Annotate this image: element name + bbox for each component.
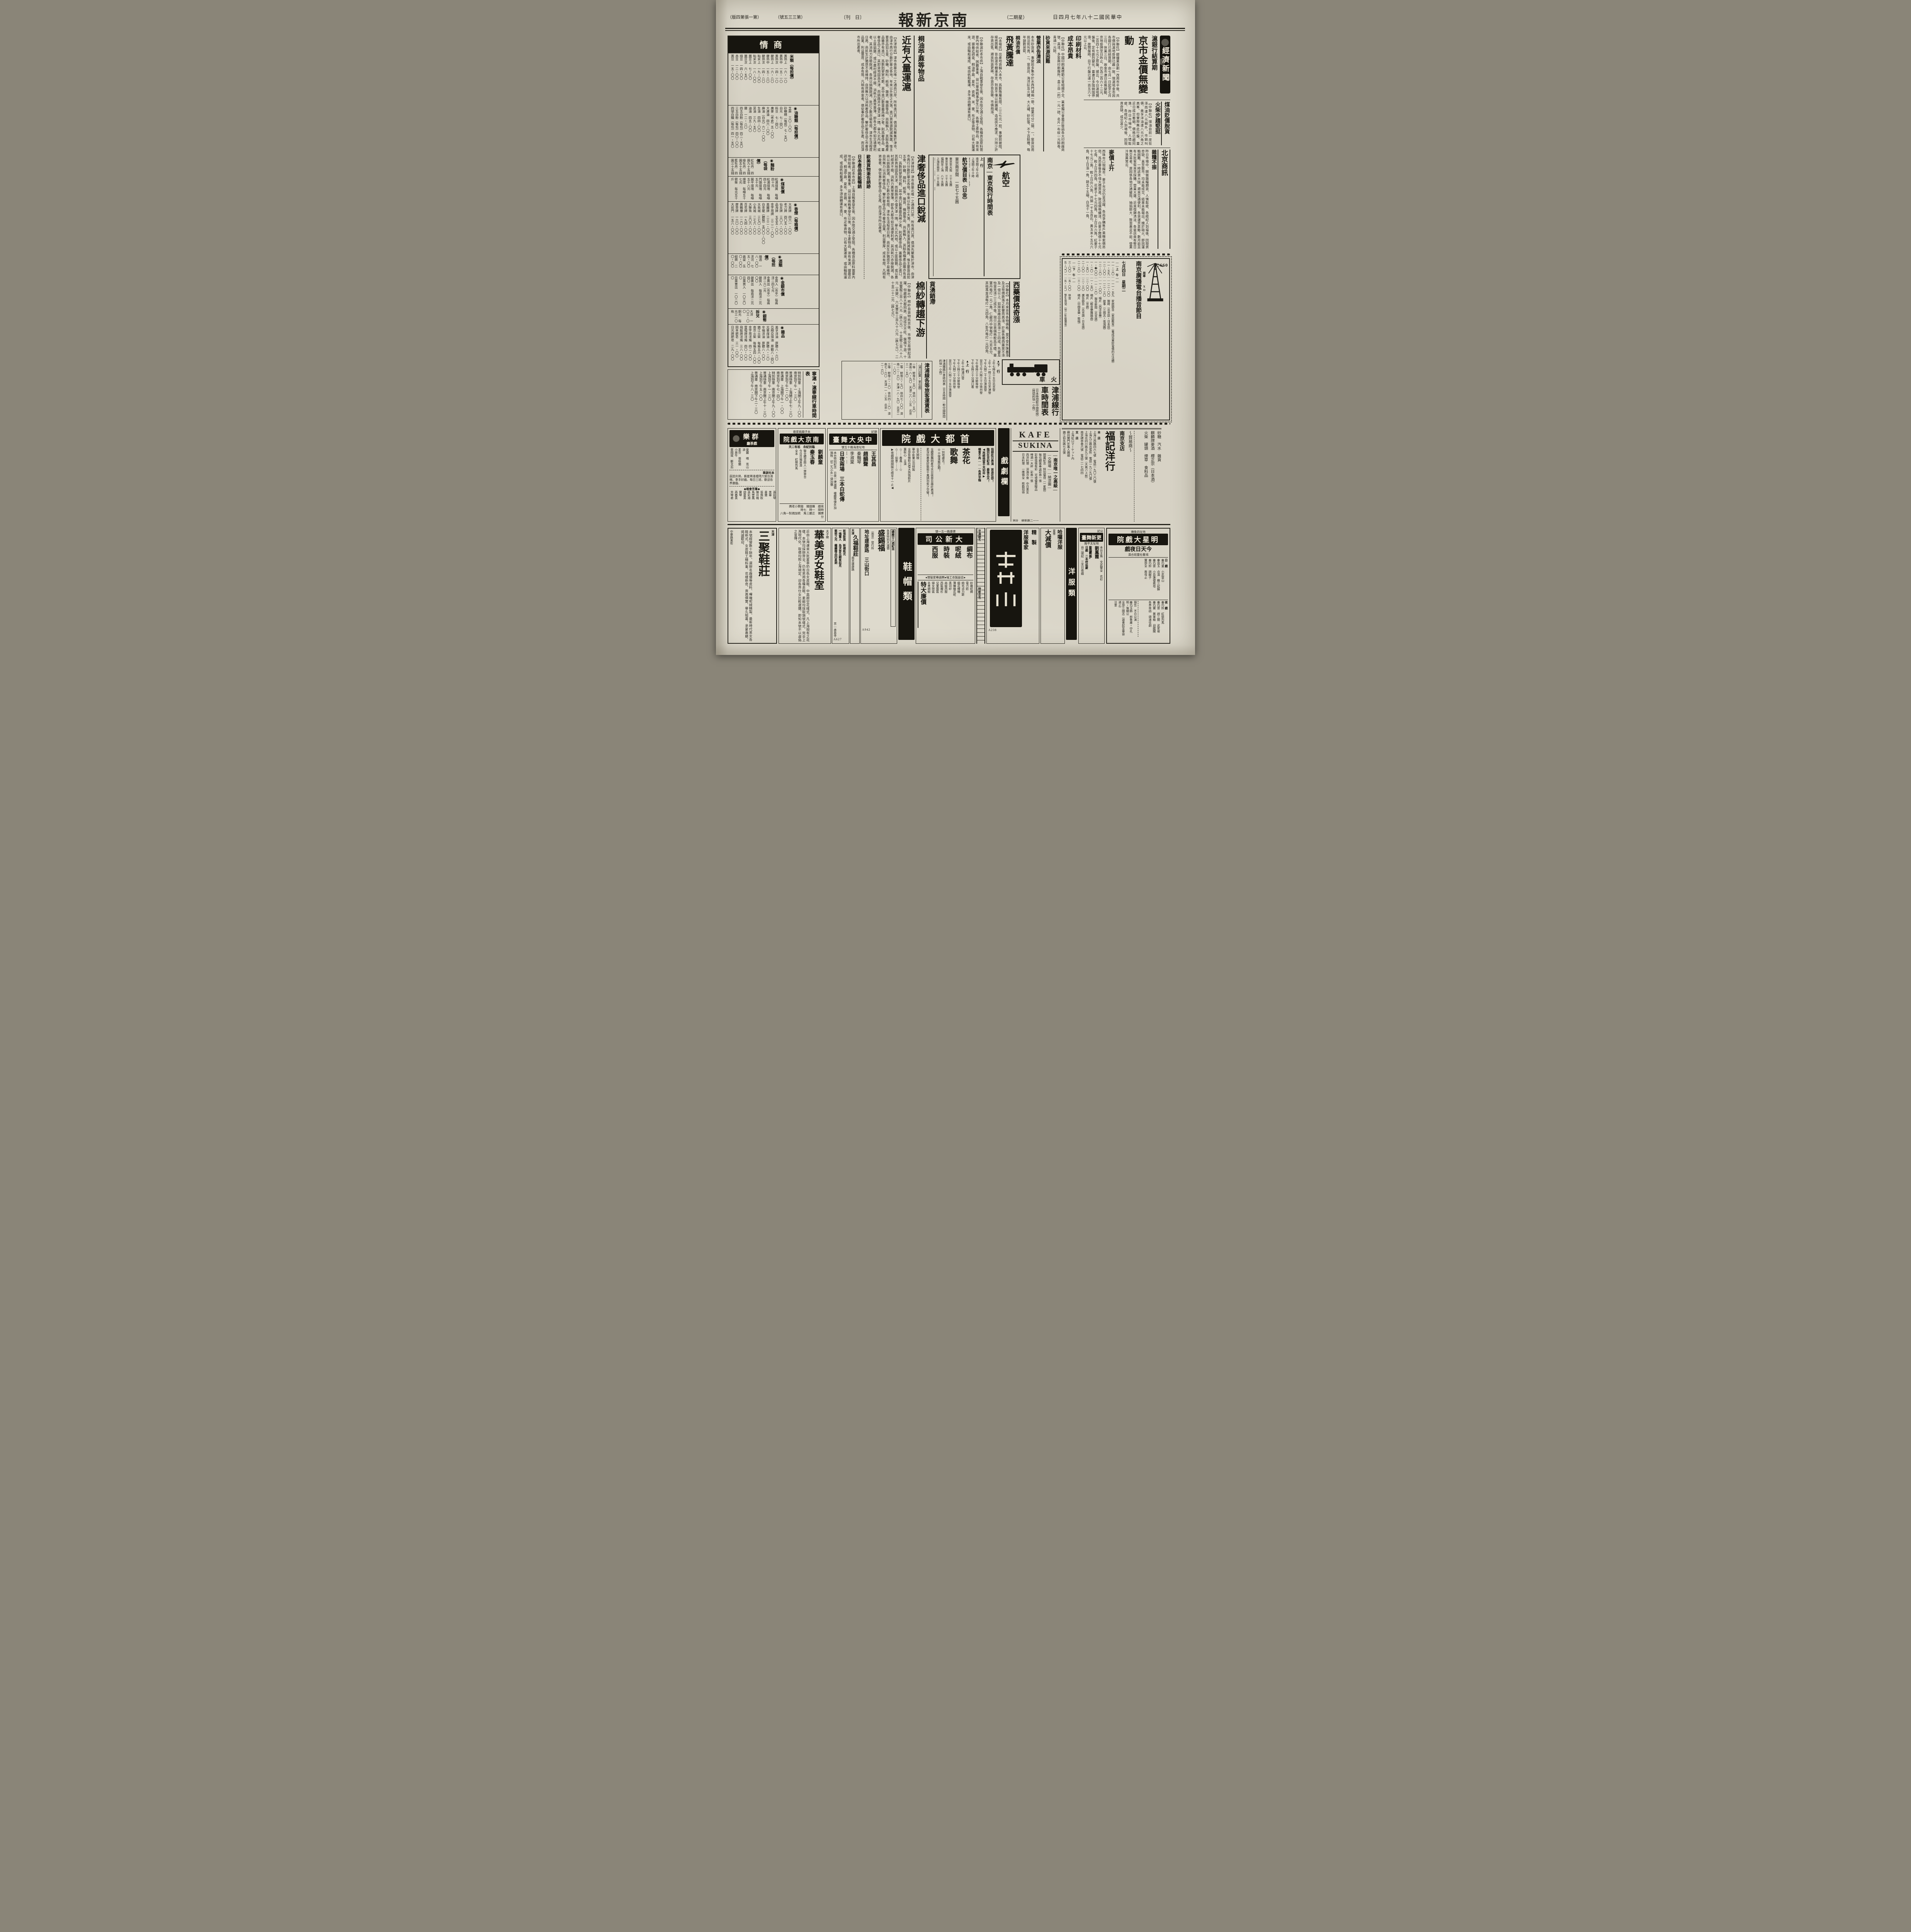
performance-line: 曼麗 唱 荒山淚 — [742, 448, 749, 470]
lead-kicker: 滬銀行結算期 — [1150, 36, 1158, 97]
divider-band-d — [728, 524, 1170, 525]
program-line: 寶部全 救母止 — [1144, 559, 1148, 600]
jinpu-time: 下午九時二十分徐州發 — [953, 359, 956, 420]
market-row: 銀賣出 每兩洋二元四〇 — [747, 276, 754, 307]
kafe-line: 開幕紀念 特別優待（一星期） — [1043, 453, 1046, 518]
singer-name: 美華 — [768, 491, 772, 522]
market-row: 粳熟中 一五・八〇 — [766, 54, 770, 104]
market-row: 白元 七・四〇 — [779, 107, 783, 156]
market-row: 仙女牌 三〇八・〇〇 — [779, 203, 783, 252]
store-address: 上海九江路出張所 電話一九二九〇號 — [1089, 431, 1092, 522]
market-row: 辛福洋油 原聽八・〇〇 — [762, 326, 765, 364]
program-line: 曁全體百餘人一齊登台 — [803, 449, 807, 503]
fuji-branch: 南京支店 — [1118, 431, 1126, 522]
aviation-box: 航空 南京—東京飛行時間表 上 行 南京開上午七時上海開上午十時東京到下午五時十… — [928, 155, 1020, 279]
daxin-address: 建康路一五一號 — [918, 530, 973, 533]
performance-line: 素芬 張桂蘭 小放牛 — [734, 448, 741, 470]
stylized-brand-logo — [990, 530, 1022, 627]
sand-subhead-1: 砂貨來源困難 — [1043, 36, 1051, 151]
tung-oil-article: 桐油市價 飛黃騰達 【本報訊】出產地貨輛入本市、爲數殊屬有限、二三七元一担、事變… — [986, 36, 1021, 151]
nanjing-theater-title: 南京大戲院 — [780, 434, 824, 444]
issue-number: （第三三五號） — [775, 14, 805, 20]
troupe-name-part: 茶花 — [960, 448, 972, 520]
daxin-banner: 特大廉價 — [918, 582, 927, 628]
branch-address: 上海虹口マーケット內 — [1071, 431, 1075, 522]
market-row: 料豆 七・四〇 — [775, 107, 778, 156]
jiufu-city: 天津 — [851, 529, 855, 535]
section-title: ◉雜品 — [780, 326, 784, 338]
market-row: 雷帽牌洋燭 四〇・〇〇 — [744, 326, 747, 364]
market-row: 鹽 一二・八〇 — [744, 107, 747, 156]
performer-name: 秦豔琴 — [856, 451, 862, 509]
up-label: ▲上 行 — [966, 359, 969, 420]
huamei-body: 近由上海運來大批夏季奶白色女皮鞋、中高跟空花樣式、凡上海現有之花樣、本號均採辦齊… — [782, 530, 810, 642]
market-row: 光華煤油 原聽八・二〇 — [766, 326, 770, 364]
radio-program-module: JC660 周率 XO 南京廣播電台播音節目 七月四日 星期二 ——上 午—— … — [1062, 258, 1170, 420]
kafe-address: 地址 維新路二一一 — [1013, 519, 1039, 522]
performer-name: 秦玉春 — [808, 449, 816, 503]
kafe-subline: —交際場——納涼園— — [1047, 453, 1052, 518]
daxin-item: 純毛派力斯 — [961, 582, 965, 628]
kafe-line: 每位顧客奉送彩券一張 — [1039, 453, 1042, 518]
market-row: 綠豆 一四・〇〇 — [740, 54, 743, 104]
singer-name: 燕春英 — [734, 491, 738, 522]
lead-body: 【中聯社】銀樓業自劃一改用市平後、共市價與滬地掛牌已趨一致、現滬地金市因各銀行已… — [1084, 36, 1120, 97]
ad-plate-code: A942 — [862, 628, 896, 631]
up-label: 上 行 — [980, 157, 984, 276]
flight-time: 上海開上午十時 — [971, 157, 975, 276]
kafe-line: 日本料理 一應俱全 慇勤招待 — [1022, 453, 1025, 518]
weekday-label: （星期二） — [1004, 14, 1027, 20]
jinpu-title: 津浦線行車時間表 — [1039, 386, 1060, 419]
sanju-city: 天津 — [771, 530, 775, 641]
market-row: 金買入（市平）每兩洋二四七元 — [771, 276, 778, 307]
flight-time: 東京到下午五時十五分 — [969, 157, 970, 276]
singer-name: 曼雅 — [764, 491, 768, 522]
timetable-row: 特別快車 南京開上午九・〇〇 上海到下午一・三〇 — [768, 371, 775, 418]
timetable-row: 普通快車 南京開上午十・三〇 上海到下午五・〇〇 — [759, 371, 767, 418]
market-row: 麻油（白元）六二・〇〇 — [762, 107, 765, 156]
promo-line: 一別他處去！ — [942, 448, 945, 520]
singer-name: 孫彩湘 — [747, 491, 751, 522]
daxin-item: 婦女時裝 — [932, 582, 935, 628]
jiufu-address: 南京建康路 — [851, 556, 855, 571]
market-row: 飛艇牌洋燭 三八・〇〇 — [740, 326, 743, 364]
market-row: 大洋 一〇三・〇〇 — [742, 310, 753, 323]
singer-name: 寶琴 — [739, 491, 742, 522]
yiming-address: 京—承恩寺 — [833, 622, 837, 638]
timetable-title: 寧滬・滬寧線行車時間表 — [803, 371, 818, 418]
huamei-place: 夫子廟 — [826, 530, 829, 642]
kafe-line: 彩券張張有彩 可得優美贈品 — [1034, 453, 1038, 518]
daxin-item: 西裝襯衫 — [940, 582, 944, 628]
printing-body: 【中聯社】中國印刷業模範公會組織不全、業者獨公會最近致函各大印刷廠商號、高漲、多… — [1052, 36, 1065, 151]
daxin-item: 名貴綢緞 — [927, 582, 931, 628]
cotton-headline-big: 棉紗轉趨下游 — [913, 281, 926, 359]
market-row: 蠶豆次 六・五〇 — [744, 54, 747, 104]
timetable-row: 特別快車 上海開上午九・〇〇 南京到下午一・三〇 — [794, 371, 801, 418]
promo-line: 臨別在京紀念 最後五天！ — [986, 448, 990, 520]
market-row: 滷油 四五・〇〇 — [748, 107, 752, 156]
notice-line: 預告 不日公演 — [1134, 601, 1137, 637]
am-label: ——上 午—— — [1115, 261, 1119, 418]
shipments-body-left: 【天津特訊】津市係華北唯一之通商口岸、所有進口貨、俱須先聚集於津市、由津市再行分… — [830, 36, 897, 151]
market-row: 四號白糖（每包）四一・五〇 — [731, 107, 734, 156]
market-section-rice: 米類（每担價） 黃熟上 一六・一〇黃熟中 一五・一〇黃熟次 一四・一〇粳熟上 一… — [728, 53, 819, 105]
market-section-exchange: ◉銀幣拆兌 大洋 一〇三・〇〇銅元 每元三一〇枚 — [728, 309, 819, 325]
tung-body: 【本報訊】出產地貨輛入本市、爲數殊屬有限、二三七元一担、事變前被阻、極感困難、皆… — [986, 36, 1002, 151]
divider-band-c — [728, 423, 1170, 425]
fare-main: 東京南京間 一百七十五圓 — [953, 157, 959, 276]
masthead: （第一張第四版） （第三三五號） 〔日 刊〕 南京新報 （星期二） 中華民國二十… — [725, 9, 1185, 27]
luxury-headline: 津奢侈品進口銳減 — [915, 155, 927, 279]
ad-plate-code: A627 — [833, 638, 848, 641]
slogan-line: 一鳴驚人 為求普及顧客起見 — [838, 529, 842, 622]
daxin-item: 兒童服裝 — [936, 582, 939, 628]
program-line: 秦巧寶 算軍粮 迴龍閣 — [1153, 601, 1156, 637]
branch-address: 蘇州閶門外萬人碼頭 — [1067, 431, 1070, 522]
promo-line: ◎◎復逢無定期！ — [937, 448, 941, 520]
central-show: 日夜兩場 三本白蛇傳 — [838, 451, 845, 509]
halo-sale: 大減價 — [1042, 529, 1052, 642]
flight-time: 南京開上午七時 — [976, 157, 979, 276]
program-line: 今日日場准演 — [799, 449, 802, 503]
market-section-misc: ◉雜品 美孚洋油 原聽八・六〇亞細亞煤油 原聽八・四〇光華煤油 原聽八・二〇辛福… — [728, 325, 819, 366]
market-row: 砂糖精（每担）七・五〇 — [784, 107, 787, 156]
performer-name: 劉麟童 — [816, 449, 824, 503]
radio-program: 一・二〇——一・五〇 唱片（輕音樂舞踏曲） — [1090, 261, 1093, 418]
market-row: 白金龍（聽裝）五〇〇・〇〇 — [762, 203, 765, 252]
market-row: 秈米次 一八・〇〇 — [753, 54, 756, 104]
market-row: 美麗牌 二三二・〇〇 — [766, 203, 770, 252]
market-row: 紹興 二〇・〇〇 — [731, 255, 738, 274]
performer-name: 王其昌 — [870, 451, 877, 509]
program-line: 秦巧鈴 紅鬃烈馬 — [1161, 601, 1165, 637]
jinpu-time: 下午三時天津着 — [947, 359, 948, 420]
daxin-item: 薄嗶嘰花呢 — [953, 582, 956, 628]
fare-row: 南京——徐州 四十五圓 — [935, 157, 935, 276]
halo-season: 夏季 — [1052, 529, 1056, 642]
notice-line: 注意 — [1114, 601, 1117, 637]
film-line: 全部有聲對白偉大熱情鉅片 — [908, 448, 911, 520]
promo-line: 素深仰慕愛好藝術千萬請勿失之交臂！ — [926, 448, 930, 520]
sanju-name: 三聚鞋莊 — [754, 530, 771, 641]
market-row: 金賣出（市平）每兩洋二六二元 — [763, 276, 770, 307]
nanjing-theater-address: 夫子廟姚家巷 — [780, 430, 824, 434]
tailor-logo-ad: 精 製洋服專家大批運到 A238 — [986, 528, 1039, 644]
jinpu-time: 上午十一時三十五分天津發 — [988, 359, 991, 420]
radio-date: 七月四日 星期二 — [1120, 261, 1126, 418]
film-line: 華中影業公司特製 — [912, 448, 915, 520]
program-line: 秦巧雲 小目蓮僧救母 — [1153, 559, 1156, 600]
decorative-frame-strip: 京滬馳名 時新花色 — [976, 528, 985, 644]
jinpu-fare-table: 津浦線各等旅客運賃表 （浦口起算・單位圓） 一等 蚌埠五・五〇 徐州一〇・五〇 … — [842, 361, 932, 420]
radio-freq-label: 周率 — [1143, 272, 1146, 277]
economy-logo-text: 經濟新聞 — [1160, 47, 1170, 82]
jinpu-time: 上午十時浦口發 — [961, 359, 965, 420]
shipments-headline-1: 桐油苧蔴等物品 — [914, 36, 925, 151]
market-row: 洋河 七五・〇〇 — [747, 255, 754, 274]
market-row: 松浦煤屑 每噸四十元 — [771, 178, 778, 200]
shoes-hats-banner: 鞋帽類 — [898, 528, 915, 640]
notice-title: 本社啟事 — [729, 470, 774, 474]
shengxifu-branch: （南京）發行所 — [871, 529, 874, 627]
cotton-body: 【中聯社】棉紗自貨物抵京後、市場交易頓起活躍、但趨勢大都囘跌、因成交不旺、盤價下… — [828, 281, 911, 359]
market-row: 粳熟上 一六・八〇 — [770, 54, 774, 104]
market-row: 黃熟中 一五・一〇 — [779, 54, 783, 104]
market-row: 藍牡丹 四圓三十五錢 — [731, 159, 738, 175]
market-row: 固本肥皂 三一・〇〇 — [735, 326, 738, 364]
market-header-art: 商情 — [728, 36, 819, 53]
market-row: 黃熟上 一六・一〇 — [784, 54, 787, 104]
market-row: 劈柴 每元五十斤 — [731, 178, 738, 200]
day-show-label: 日 戲 — [1165, 559, 1168, 600]
nanjing-theater-ad: 夫子廟姚家巷 南京大戲院 臨別紀念 祇有二天 劉麟童秦玉春孫君萍花翠蘭 曁全體百… — [778, 428, 826, 522]
printing-headline-2: 成本昂貴 — [1066, 36, 1074, 151]
market-header-title: 商情 — [760, 38, 787, 51]
match-subhead: 火柴步趨堅挺 — [1153, 102, 1161, 145]
troupe-name-part: 歌舞 — [948, 448, 959, 520]
sand-subhead-2: 營業亦告清淡 — [1035, 36, 1042, 151]
jiufu-shoes-ad: 天津 久福鞋莊 南京建康路 — [850, 528, 860, 644]
store-address: 南京碑亭巷六號 電話二一七四四 — [1080, 431, 1084, 522]
singer-name: 胡曼英 — [743, 491, 746, 522]
fare-class-row: 二等 蚌埠三・七〇 徐州七・〇〇 濟南一二・六〇 天津一八・九〇 北京二一・〇〇 — [893, 363, 904, 418]
goods-line: 火柴 罐頭 煙草 食料品 — [1143, 431, 1148, 522]
central-address: 地址淮海路十五號 — [829, 445, 877, 450]
daxin-note: ●自設製衣工場●聘請專家管理● — [918, 575, 973, 580]
radio-callsign: JC660 — [1153, 262, 1168, 268]
gengxin-title: 更新舞臺 — [1080, 533, 1103, 542]
market-row: 綠牡丹 四圓五十五錢 — [739, 159, 746, 175]
market-row: 南京火柴 每箱五四・〇〇 — [753, 326, 756, 364]
section-title: ◉銀幣拆兌 — [755, 310, 766, 322]
market-row: 門頭煤塊 每噸五十元 — [755, 178, 762, 200]
jinpu-time: 上午七時五十五分北京發 — [992, 359, 996, 420]
performer-name: 劉鳳霞 — [1093, 546, 1100, 629]
market-row: 品海牌 五五五・〇〇 — [775, 203, 778, 252]
market-section-gold: ◉金銀市價 金買入（市平）每兩洋二四七元金賣出（市平）每兩洋二六二元銀買入 每兩… — [728, 275, 819, 309]
huamei-shoes-ad: 夫子廟 華美男女鞋室 近由上海運來大批夏季奶白色女皮鞋、中高跟空花樣式、凡上海現… — [779, 528, 831, 644]
timetable-row: 普通車 上海開下午一・〇〇 南京到下午七・四〇 — [776, 371, 784, 418]
central-note: 本台特別紀念 日夜一律減價 樓廳等號外加捐稅 初二九小外一律加價 — [830, 451, 837, 509]
singer-name: 陳月梅 — [756, 491, 759, 522]
performance-line: 蔡國斌 斷太后 — [730, 448, 734, 470]
market-row: 紅牡丹 四圓九十五錢 — [747, 159, 754, 175]
market-section-wine: ◉酒類（每担價） 燒酒 一八・〇〇洋河 七五・〇〇高粱 五〇・〇〇紹興 二〇・〇… — [728, 254, 819, 275]
program-line: 全本 紅鬃烈馬 — [795, 449, 798, 503]
daxin-item: 黑司紗 — [949, 582, 952, 628]
banner-text: 洋服類 — [1066, 568, 1076, 600]
night-show-label: 夜 戲 — [1165, 601, 1168, 637]
fare-title: 航空價目表（日金） — [961, 157, 968, 276]
film-line: 全天開映 — [916, 448, 920, 520]
economy-logo: 經濟新聞 — [1160, 36, 1170, 94]
aviation-brand: 航空 — [1000, 172, 1011, 187]
kafe-logo-1: KAFE — [1013, 430, 1058, 441]
strip-caption-top: 京滬馳名 — [978, 529, 981, 541]
daxin-category: 時裝 — [941, 546, 950, 575]
daxin-category: 西服 — [929, 546, 938, 575]
daxin-item: 縐花嗶嘰 — [957, 582, 961, 628]
yiming-ad: 新張新貨 新樣新式一鳴驚人 為求普及顧客起見藝術之光 繼續贈品四星期 京—承恩寺… — [832, 528, 849, 644]
radio-program: 一・五〇——二・〇〇 唱片（京劇） — [1086, 261, 1089, 418]
program-line: 各界來函 頌演佳劇 — [1148, 601, 1152, 637]
market-row: 松浦煤塊 每噸四十四元 — [763, 178, 770, 200]
film-line: 葉秋心 主演 — [903, 448, 907, 520]
cotton-yarn-article: 貨湧銷滯 棉紗轉趨下游 【中聯社】棉紗自貨物抵京後、市場交易頓起活躍、但趨勢大都… — [828, 281, 936, 359]
market-row: 日票賣出 一〇二〇〇 — [731, 276, 738, 307]
date-line: 中華民國二十八年七月四日 — [1053, 13, 1122, 20]
market-row: 黃豆 一五・〇〇 — [731, 54, 734, 104]
western-clothes-banner: 洋服類 — [1066, 528, 1077, 640]
kerosene-body: 【中聯社】煤油自前一度狂漲而達八元關外、市銷叫價、美孚洋油達八元六角之高峯、但實… — [1084, 102, 1152, 145]
mingxing-theater-ad: 地址四象橋 明星大戲院 今天日夜戲 鴻春社童班合演 日 戲 秦巧童 小武當山秦良… — [1106, 528, 1170, 644]
promo-line: ◀再經挽留不克如命▶ — [982, 448, 986, 520]
drama-column-banner: 戲劇欄 — [998, 428, 1010, 516]
sanju-shoes-ad: 天津 三聚鞋莊 本號經營數十餘年、選辦名廠優等皮料、嗶嘰呢絨精製、最新時代男女各… — [728, 528, 777, 644]
kafe-tagline: —南京唯一之高級— — [1052, 453, 1058, 518]
singer-name: 馬雲鳳 — [751, 491, 755, 522]
fuji-role: ～貿易商～ — [1127, 431, 1134, 522]
market-row: 蠶豆上 七・〇〇 — [748, 54, 752, 104]
qunle-subname: 戲茶廳 — [729, 441, 774, 446]
market-row: 大連油 四六・〇〇 — [766, 107, 770, 156]
gengxin-stage-ad: 公記 更新舞臺 地址太平路 本台主角 文武雙全 花衫 劉鳳霞蓋蘭亭于占元 日戲 … — [1078, 528, 1105, 644]
printing-headline-1: 印刷材料 — [1074, 36, 1082, 151]
luxury-imports-article: 津奢侈品進口銳減 【天津特訊】津市係華北唯一之通商口岸、所有進口貨、俱須先聚集於… — [828, 155, 927, 279]
beijing-news-title: 北京商訊 — [1158, 150, 1170, 249]
halo-address: 地址 太平路一九七號・一四九號 — [1041, 529, 1041, 642]
market-row: 銅元 每元三一〇枚 — [731, 310, 741, 323]
radio-program: 三・〇〇——五・〇〇 休音 — [1068, 261, 1071, 418]
shipments-headline-2: 近有大量運滬 — [899, 36, 912, 151]
wheat-subhead: 麥價上升 — [1107, 150, 1115, 249]
program-line: 秦巧童 小武當山 — [1161, 559, 1165, 600]
nanjing-night-show: 夜戲 雁翅關 鎗斃小老媽 — [780, 503, 824, 508]
jiufu-name: 久福鞋莊 — [851, 535, 859, 556]
radio-band-label: XO — [1143, 285, 1146, 292]
performer-name: 趙韻聲 — [862, 451, 869, 509]
performer-name: 李淑棠 — [849, 451, 855, 509]
pm-label: ——下 午—— — [1072, 261, 1076, 418]
huamei-name: 華美男女鞋室 — [811, 530, 826, 642]
market-section-cigarettes: ◉香煙（每箱價） 大英牌 四六一・〇〇老刀牌 四〇五・〇〇仙女牌 三〇八・〇〇品… — [728, 202, 819, 254]
qunle-teahouse-ad: 群樂 戲茶廳 曼麗 唱 荒山淚素芬 張桂蘭 小放牛蔡國斌 斷太后 本社啟事 茲因… — [728, 428, 776, 522]
capital-theater-title: 首都大戲院 — [882, 430, 994, 446]
radio-tower-illustration: JC660 周率 XO — [1143, 261, 1167, 418]
timetable-row: 普通車 南京開下午二・三〇 上海到下午八・三〇 — [750, 371, 758, 418]
nanjing-farewell-note: 臨別紀念 祇有二天 — [780, 444, 824, 449]
nanjing-price: 票價 正廳三角 統加捐對一角八分 — [780, 512, 824, 519]
market-row: 百花牌 一九四・〇〇 — [744, 203, 747, 252]
grain-subhead: 雜糧不振 — [1150, 150, 1158, 249]
market-row: 三五白粉（每包）四〇・〇〇 — [735, 107, 738, 156]
sale-line: 各貨特別大減價 — [886, 529, 890, 627]
goods-line: 砂糖 汽水 雜貨 — [1156, 431, 1161, 522]
market-row: 廣麥（老倉）五・〇〇 — [770, 107, 774, 156]
market-section-oil: ◉油糖類（每担價） 芝蔴 三〇・〇〇砂糖精（每担）七・五〇白元 七・四〇料豆 七… — [728, 105, 819, 158]
luxury-body: 【天津特訊】津市係華北唯一之通商口岸、所有進口貨、俱須先聚集於津市、由津市再行分… — [873, 155, 915, 279]
mingxing-troupe: 鴻春社童班合演 — [1109, 553, 1168, 558]
market-row: 高粱 五〇・〇〇 — [739, 255, 746, 274]
daxin-category: 綢布 — [964, 546, 973, 575]
market-row: 鎮江火柴 每箱五六・〇〇 — [757, 326, 761, 364]
daxin-company-ad: 建康路一五一號 大新公司 綢布呢絨時裝西服 ●自設製衣工場●聘請專家管理● 紗羅… — [916, 528, 975, 644]
medicine-article: 西藥價格奇漲 【中聯社】本月來京市各物價格、莫不受外匯暴漲及法幣價跌落之影響而高… — [938, 281, 1021, 357]
beijing-body: 昨日市場中、開做雜糧期貨、人情鬆疲、各經紀人到場後、因現貨奇缺、直至散市、均未能… — [1116, 150, 1149, 249]
halo-suits-ad: 哈囉洋服 夏季 大減價 花式繁多 內襯豐富聽君揀愛 包不走樣工作優美 價目低廉式… — [1041, 528, 1065, 644]
central-tag: 錦記 — [829, 430, 877, 434]
sanju-address: 中華路東街 — [730, 530, 733, 641]
store-address: 上海北四川路五九三號（大直バス前） — [1085, 431, 1088, 522]
kafe-logo-2: SUKINA — [1013, 441, 1058, 452]
branch-address: 鎮江伯先路七五號 — [1063, 431, 1066, 522]
cotton-headline-small: 貨湧銷滯 — [926, 281, 936, 359]
jinpu-side-title: 津浦鐵路行車時刻表（日本時間—較中國時間約快一小時） — [939, 359, 947, 420]
tailor-line: 洋服專家 — [1022, 530, 1029, 627]
notice-body: 茲因炎熱、藝星兩逢禮拜六登台演唱、拿手好戲、每日三班、歡迎各界惠臨、 — [729, 474, 774, 486]
gengxin-cast-note: 本台主角 文武雙全 花衫 — [1100, 546, 1103, 629]
promo-line: 機會不再———各界早臨 — [978, 448, 981, 520]
economy-news-pack: 經濟新聞 滬銀行結算期 京市金價無變動 【中聯社】銀樓業自劃一改用市平後、共市價… — [1084, 36, 1170, 252]
fuji-trading-ad: 砂糖 汽水 雜貨 麒麟牌麥酒 櫻正宗（日本酒） 火柴 罐頭 煙草 食料品 ～貿易… — [1062, 428, 1161, 522]
slogan-line: 藝術之光 繼續贈品四星期 — [834, 529, 838, 622]
section-title: ◉金銀市價 — [780, 276, 784, 296]
divider-wavy-right — [1062, 253, 1170, 255]
market-row: 四五白粉（每包）四二・五〇 — [740, 107, 743, 156]
capital-theater-ad: 首都大戲院 指期赴日表演 首途在即！臨別在京紀念 最後五天！◀再經挽留不克如命▶… — [880, 428, 996, 522]
mingxing-title: 明星大戲院 — [1109, 534, 1168, 545]
singer-name: 張佩秋 — [760, 491, 763, 522]
program-line: 秦巧雲 趕三關 武家坡 — [1157, 601, 1160, 637]
nanjing-times: 時間 一時 七時 — [780, 508, 824, 512]
market-row: 秈米上 一九・〇〇 — [757, 54, 761, 104]
film-line: ☆⋯⋯如意⋯⋯☆ — [895, 448, 898, 520]
radio-program: 一二・三〇——一・〇〇 唱片（西洋音樂） — [1098, 261, 1102, 418]
masthead-rule-top — [725, 28, 1185, 29]
radio-program: 一一・五九——一二・〇〇 報時（北京話・日本話） — [1107, 261, 1110, 418]
slogan-line: 新張新貨 新樣新式 — [843, 529, 846, 622]
sand-body: 本市砂貨業、事變前多集中於水西門城廂一帶、營業可分二類、一、窰貨店用挑沿街叫賣、… — [1022, 36, 1035, 151]
luxury-subhead-1: 歐美貨物漸告絕跡 — [864, 155, 871, 279]
program-line: 秦巧鈴 調解子 — [1148, 559, 1152, 600]
market-row: 菜油 三九・五〇 — [753, 107, 756, 156]
market-row: 日光牌肥皂 二九・〇〇 — [731, 326, 734, 364]
shengxifu-address: 地址建康路 三山街口 — [864, 529, 870, 627]
market-row: 煙煤 每噸五十七元 — [739, 178, 746, 200]
daily-label: 〔日 刊〕 — [841, 14, 864, 20]
section-title: ◉酒類（每担價） — [764, 255, 782, 267]
daxin-category: 呢絨 — [952, 546, 962, 575]
newspaper-title: 南京新報 — [898, 9, 969, 27]
jinpu-railway-module: 火 車 津浦線行車時間表 （日本時間較中國時間）（時間約快一小時） ▲下 行 上… — [938, 359, 1060, 420]
fare-class-row: 三等 蚌埠二・二〇 徐州四・二〇 濟南七・六〇 天津一一・三五 北京一二・六〇 — [881, 363, 892, 418]
shengxifu-name: 盛錫福 — [876, 529, 886, 627]
film-line: ▶夜戲時間開映七時至十一止◀ — [891, 448, 894, 520]
printing-article: 印刷材料 成本昂貴 【中聯社】中國印刷業模範公會組織不全、業者獨公會最近致函各大… — [1022, 36, 1082, 151]
newspaper-page: （第一張第四版） （第三三五號） 〔日 刊〕 南京新報 （星期二） 中華民國二十… — [716, 0, 1195, 655]
market-row: 黃熟次 一四・一〇 — [775, 54, 778, 104]
strip-caption-bottom: 時新花色 — [978, 587, 981, 599]
radio-program: 五・〇〇——五・三〇 學生時間（附二年級講座） — [1064, 261, 1067, 418]
qunle-name: 群樂 — [743, 433, 761, 440]
shengxifu-ad: 總廠廿八週紀念 各貨特別大減價 盛錫福 （南京）發行所 地址建康路 三山街口 經… — [860, 528, 897, 644]
section-title: ◉麵粉（每袋價） — [756, 159, 774, 171]
page-note: （第一張第四版） — [728, 14, 762, 20]
market-row: 燒酒 一八・〇〇 — [755, 255, 762, 274]
shanghai-line-timetable: 寧滬・滬寧線行車時間表 特別快車 上海開上午九・〇〇 南京到下午一・三〇普通快車… — [728, 369, 819, 420]
